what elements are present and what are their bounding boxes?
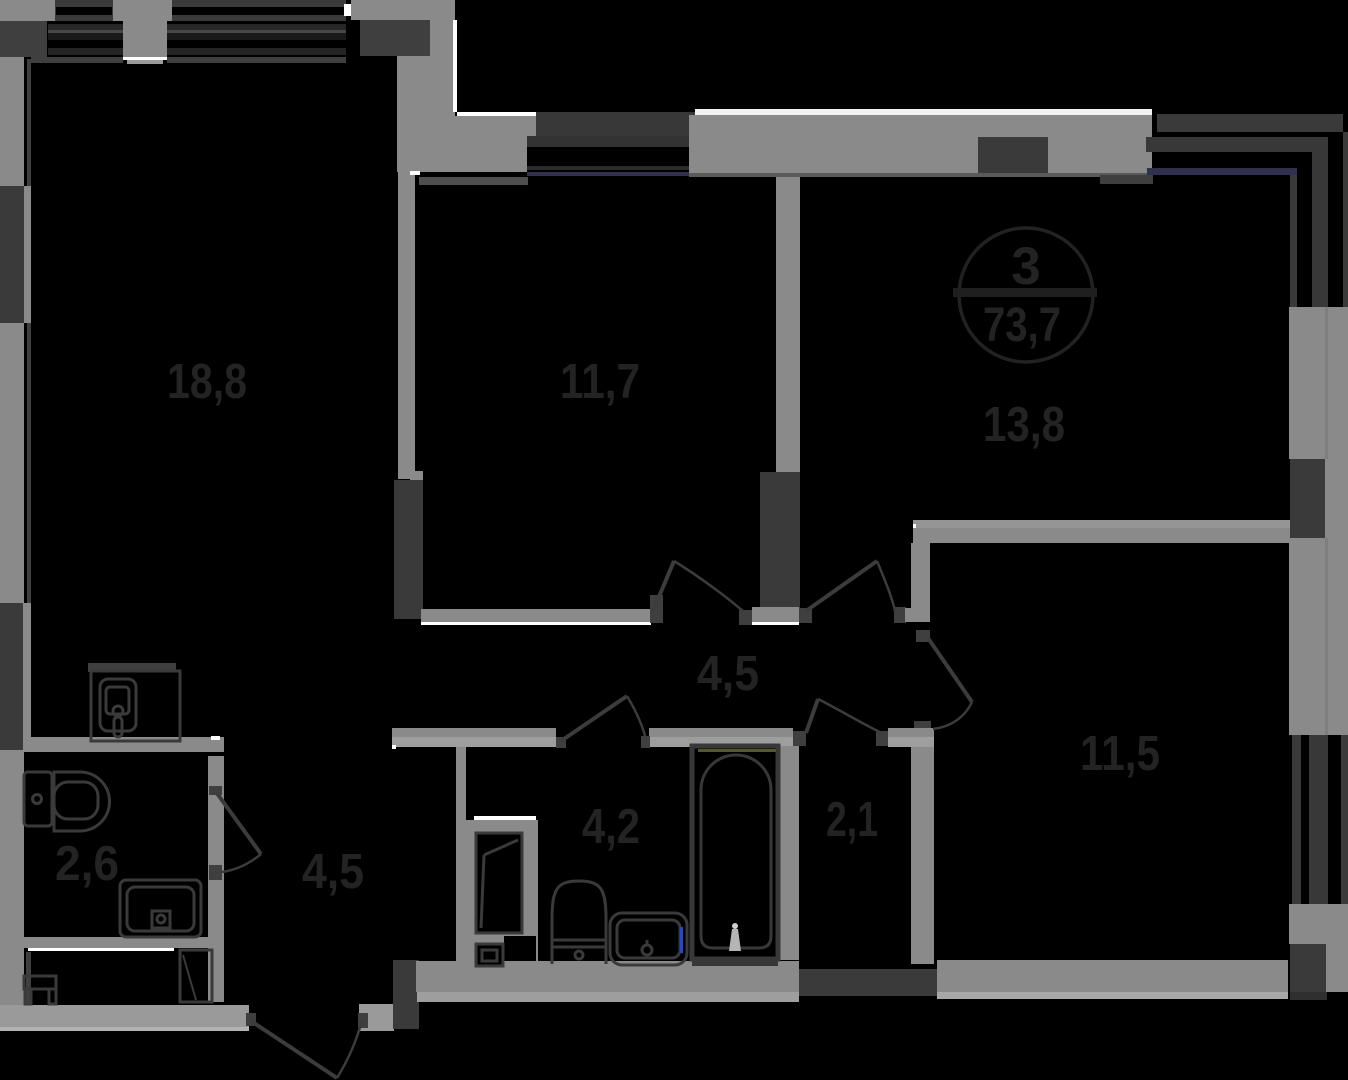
svg-text:13,8: 13,8 <box>983 398 1065 452</box>
svg-text:2,6: 2,6 <box>55 837 119 891</box>
svg-text:4,5: 4,5 <box>697 647 759 701</box>
svg-text:2,1: 2,1 <box>826 793 878 847</box>
svg-text:18,8: 18,8 <box>167 355 247 409</box>
svg-text:11,5: 11,5 <box>1080 727 1160 781</box>
svg-text:3: 3 <box>1011 237 1040 296</box>
svg-text:4,2: 4,2 <box>582 800 640 854</box>
svg-text:73,7: 73,7 <box>983 299 1061 352</box>
svg-text:11,7: 11,7 <box>560 355 640 409</box>
svg-text:4,5: 4,5 <box>302 845 364 899</box>
